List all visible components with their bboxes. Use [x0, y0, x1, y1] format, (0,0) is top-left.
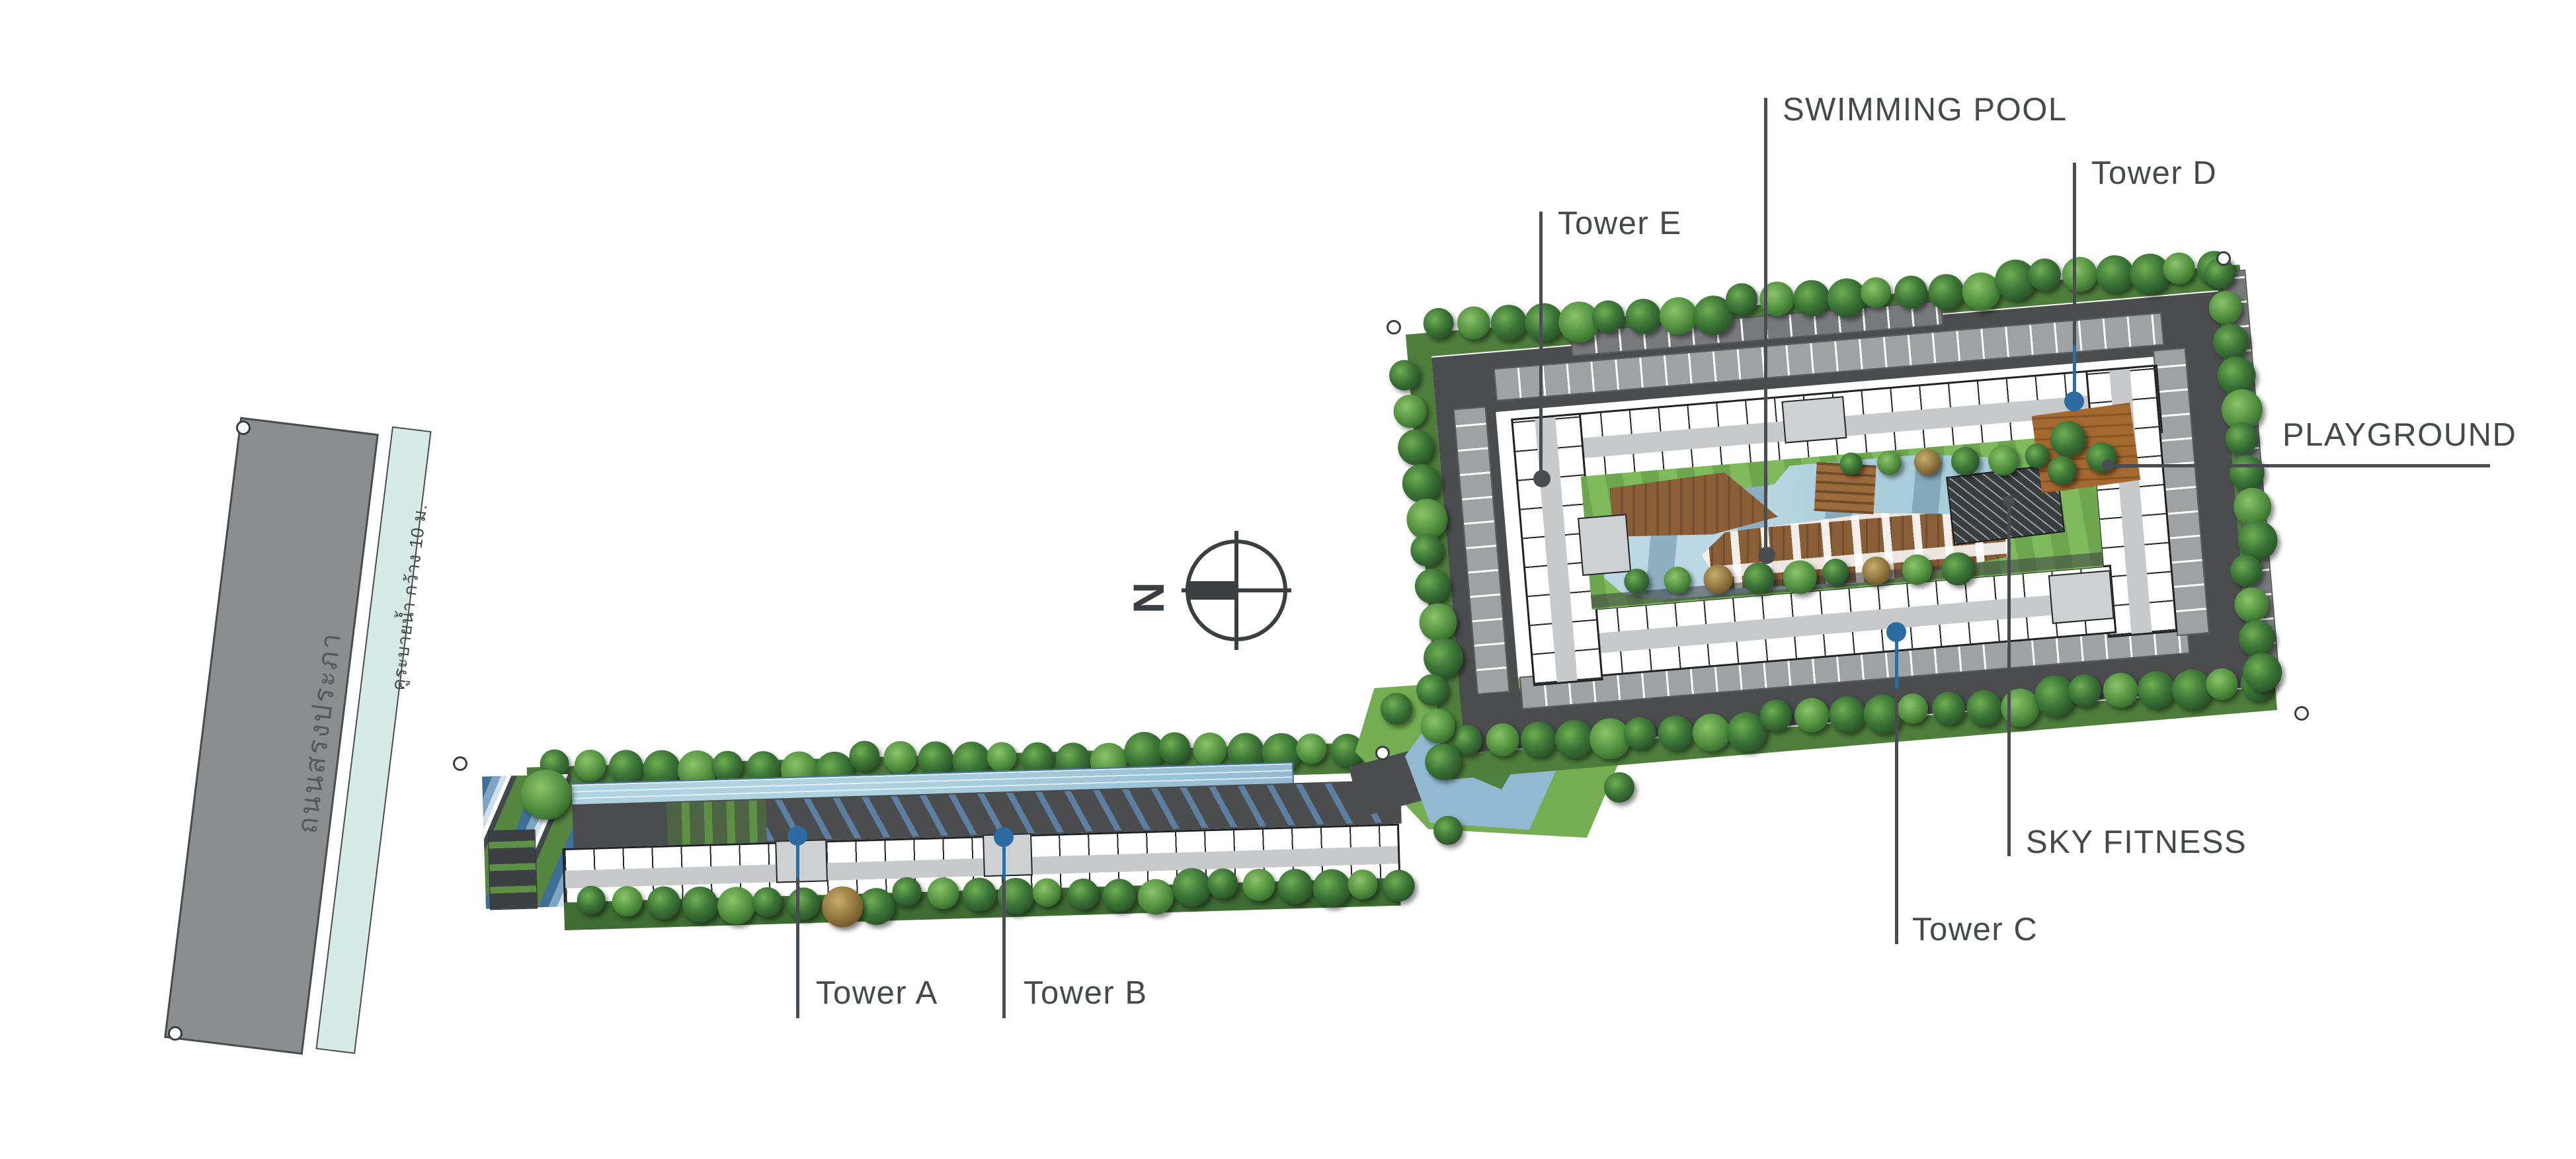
swimming-pool-leader-line [1764, 98, 1767, 555]
tower-c-lobby [2048, 570, 2114, 624]
tree-icon [1392, 393, 1428, 429]
tree-icon [1987, 444, 2020, 477]
tree-icon [1742, 561, 1776, 595]
garden-gap [666, 800, 767, 845]
tree-icon [1792, 278, 1831, 318]
tree-icon [1703, 563, 1734, 595]
tree-icon [1828, 695, 1867, 735]
tree-icon [1876, 450, 1902, 476]
entrance-lobby [1781, 396, 1847, 444]
tree-icon [1931, 690, 1966, 726]
tree-icon [2061, 255, 2099, 293]
tree-icon [927, 877, 959, 909]
tree-icon [1172, 867, 1211, 906]
tree-icon [2212, 323, 2250, 361]
tree-icon [2102, 671, 2140, 709]
tree-icon [1418, 602, 1458, 642]
towers-ab-block [448, 738, 1398, 931]
tree-icon [1296, 733, 1328, 765]
tree-icon [1658, 296, 1699, 336]
tower-d-leader-stub [2073, 345, 2076, 398]
survey-marker-icon [1375, 746, 1390, 760]
tree-icon [1381, 693, 1412, 725]
tree-icon [1822, 557, 1850, 586]
sky-fitness-marker [2003, 495, 2015, 507]
parking-stall-column [488, 829, 538, 910]
tree-icon [1396, 428, 1435, 466]
tower-e-leader-line [1539, 212, 1543, 479]
tree-icon [2136, 670, 2177, 711]
towers-cde-complex [1404, 263, 2278, 781]
tower-e-marker [1533, 470, 1550, 487]
tree-icon [1312, 869, 1351, 907]
tree-icon [1388, 359, 1421, 392]
tower-d-marker [2064, 391, 2084, 411]
tree-icon [1242, 868, 1276, 902]
tree-icon [2228, 454, 2266, 491]
tree-icon [647, 886, 680, 920]
tree-icon [1401, 463, 1442, 504]
tree-icon [752, 887, 783, 918]
tree-icon [574, 749, 606, 781]
survey-marker-icon [236, 420, 251, 435]
tree-icon [1691, 712, 1732, 752]
tree-icon [1158, 732, 1191, 764]
tree-icon [1414, 567, 1451, 605]
tower-b-label: Tower B [1024, 975, 1148, 1012]
tree-icon [1490, 303, 1528, 342]
playground-leader-line [2107, 464, 2490, 467]
tree-icon [2024, 442, 2050, 468]
tree-icon [1893, 274, 1929, 310]
tree-icon [1067, 878, 1099, 910]
tree-icon [577, 885, 606, 914]
tower-d-label: Tower D [2091, 155, 2217, 192]
survey-marker-icon [168, 1026, 182, 1041]
tower-c-marker [1886, 622, 1906, 642]
tree-icon [1913, 448, 1942, 477]
tree-icon [883, 740, 917, 774]
tree-icon [1861, 555, 1892, 586]
tree-icon [1927, 272, 1966, 311]
tree-icon [682, 886, 718, 922]
survey-marker-icon [1387, 320, 1401, 335]
compass-north-pointer [1188, 581, 1236, 600]
tower-a-marker [787, 826, 807, 846]
tree-icon [787, 887, 820, 920]
survey-marker-icon [2294, 706, 2309, 721]
tree-icon [1456, 305, 1492, 340]
tree-icon [1663, 565, 1692, 594]
playground-marker [2102, 460, 2114, 471]
tree-icon [1422, 637, 1465, 680]
tree-icon [608, 749, 643, 784]
tree-icon [1793, 697, 1830, 734]
sky-fitness-leader-line [2007, 500, 2011, 856]
tree-icon [1277, 869, 1314, 905]
tree-icon [1193, 732, 1228, 767]
tree-icon [1207, 868, 1238, 899]
survey-marker-icon [453, 756, 467, 771]
tree-icon [1102, 878, 1137, 912]
tree-icon [1782, 559, 1818, 596]
survey-marker-icon [2216, 251, 2231, 266]
tree-icon [892, 877, 922, 906]
tree-icon [2237, 619, 2277, 659]
tree-icon [1950, 446, 1981, 477]
tree-icon [1420, 707, 1457, 744]
tree-icon [1422, 307, 1455, 340]
site-plan-canvas: ถนนสรงประภา คูระบายน้ำ กว้าง 10 ม. N [0, 0, 2576, 1159]
tower-b-marker [994, 827, 1014, 847]
tree-icon [1032, 878, 1061, 907]
tree-icon [1137, 879, 1174, 916]
swimming-pool-marker [1758, 547, 1775, 564]
north-compass-icon: N [1186, 540, 1287, 641]
tree-icon [1554, 719, 1595, 760]
tree-icon [962, 877, 997, 912]
tower-c-label: Tower C [1912, 911, 2038, 948]
tree-icon [1348, 869, 1378, 900]
tree-icon [1657, 714, 1695, 752]
tree-icon [2234, 586, 2271, 623]
tower-e-label: Tower E [1558, 205, 1682, 242]
tree-icon [1901, 553, 1934, 586]
tree-icon [849, 740, 880, 772]
tree-icon [986, 742, 1017, 772]
tower-e-lobby [1578, 514, 1631, 576]
swimming-pool-label: SWIMMING POOL [1783, 91, 2068, 128]
tree-icon [1383, 869, 1416, 902]
tree-icon [1625, 298, 1662, 335]
playground-label: PLAYGROUND [2282, 417, 2516, 454]
tree-icon [1604, 772, 1634, 803]
tree-icon [612, 886, 643, 918]
tree-icon [1965, 689, 2004, 728]
tree-icon [1433, 816, 1463, 845]
tree-icon [1519, 720, 1558, 758]
tower-a-label: Tower A [816, 975, 938, 1012]
tree-icon [717, 887, 756, 926]
tree-icon [711, 750, 743, 782]
tower-a-lobby [775, 839, 828, 883]
compass-north-letter: N [1123, 574, 1174, 614]
tree-icon [1409, 533, 1444, 568]
sky-fitness-label: SKY FITNESS [2026, 824, 2247, 861]
